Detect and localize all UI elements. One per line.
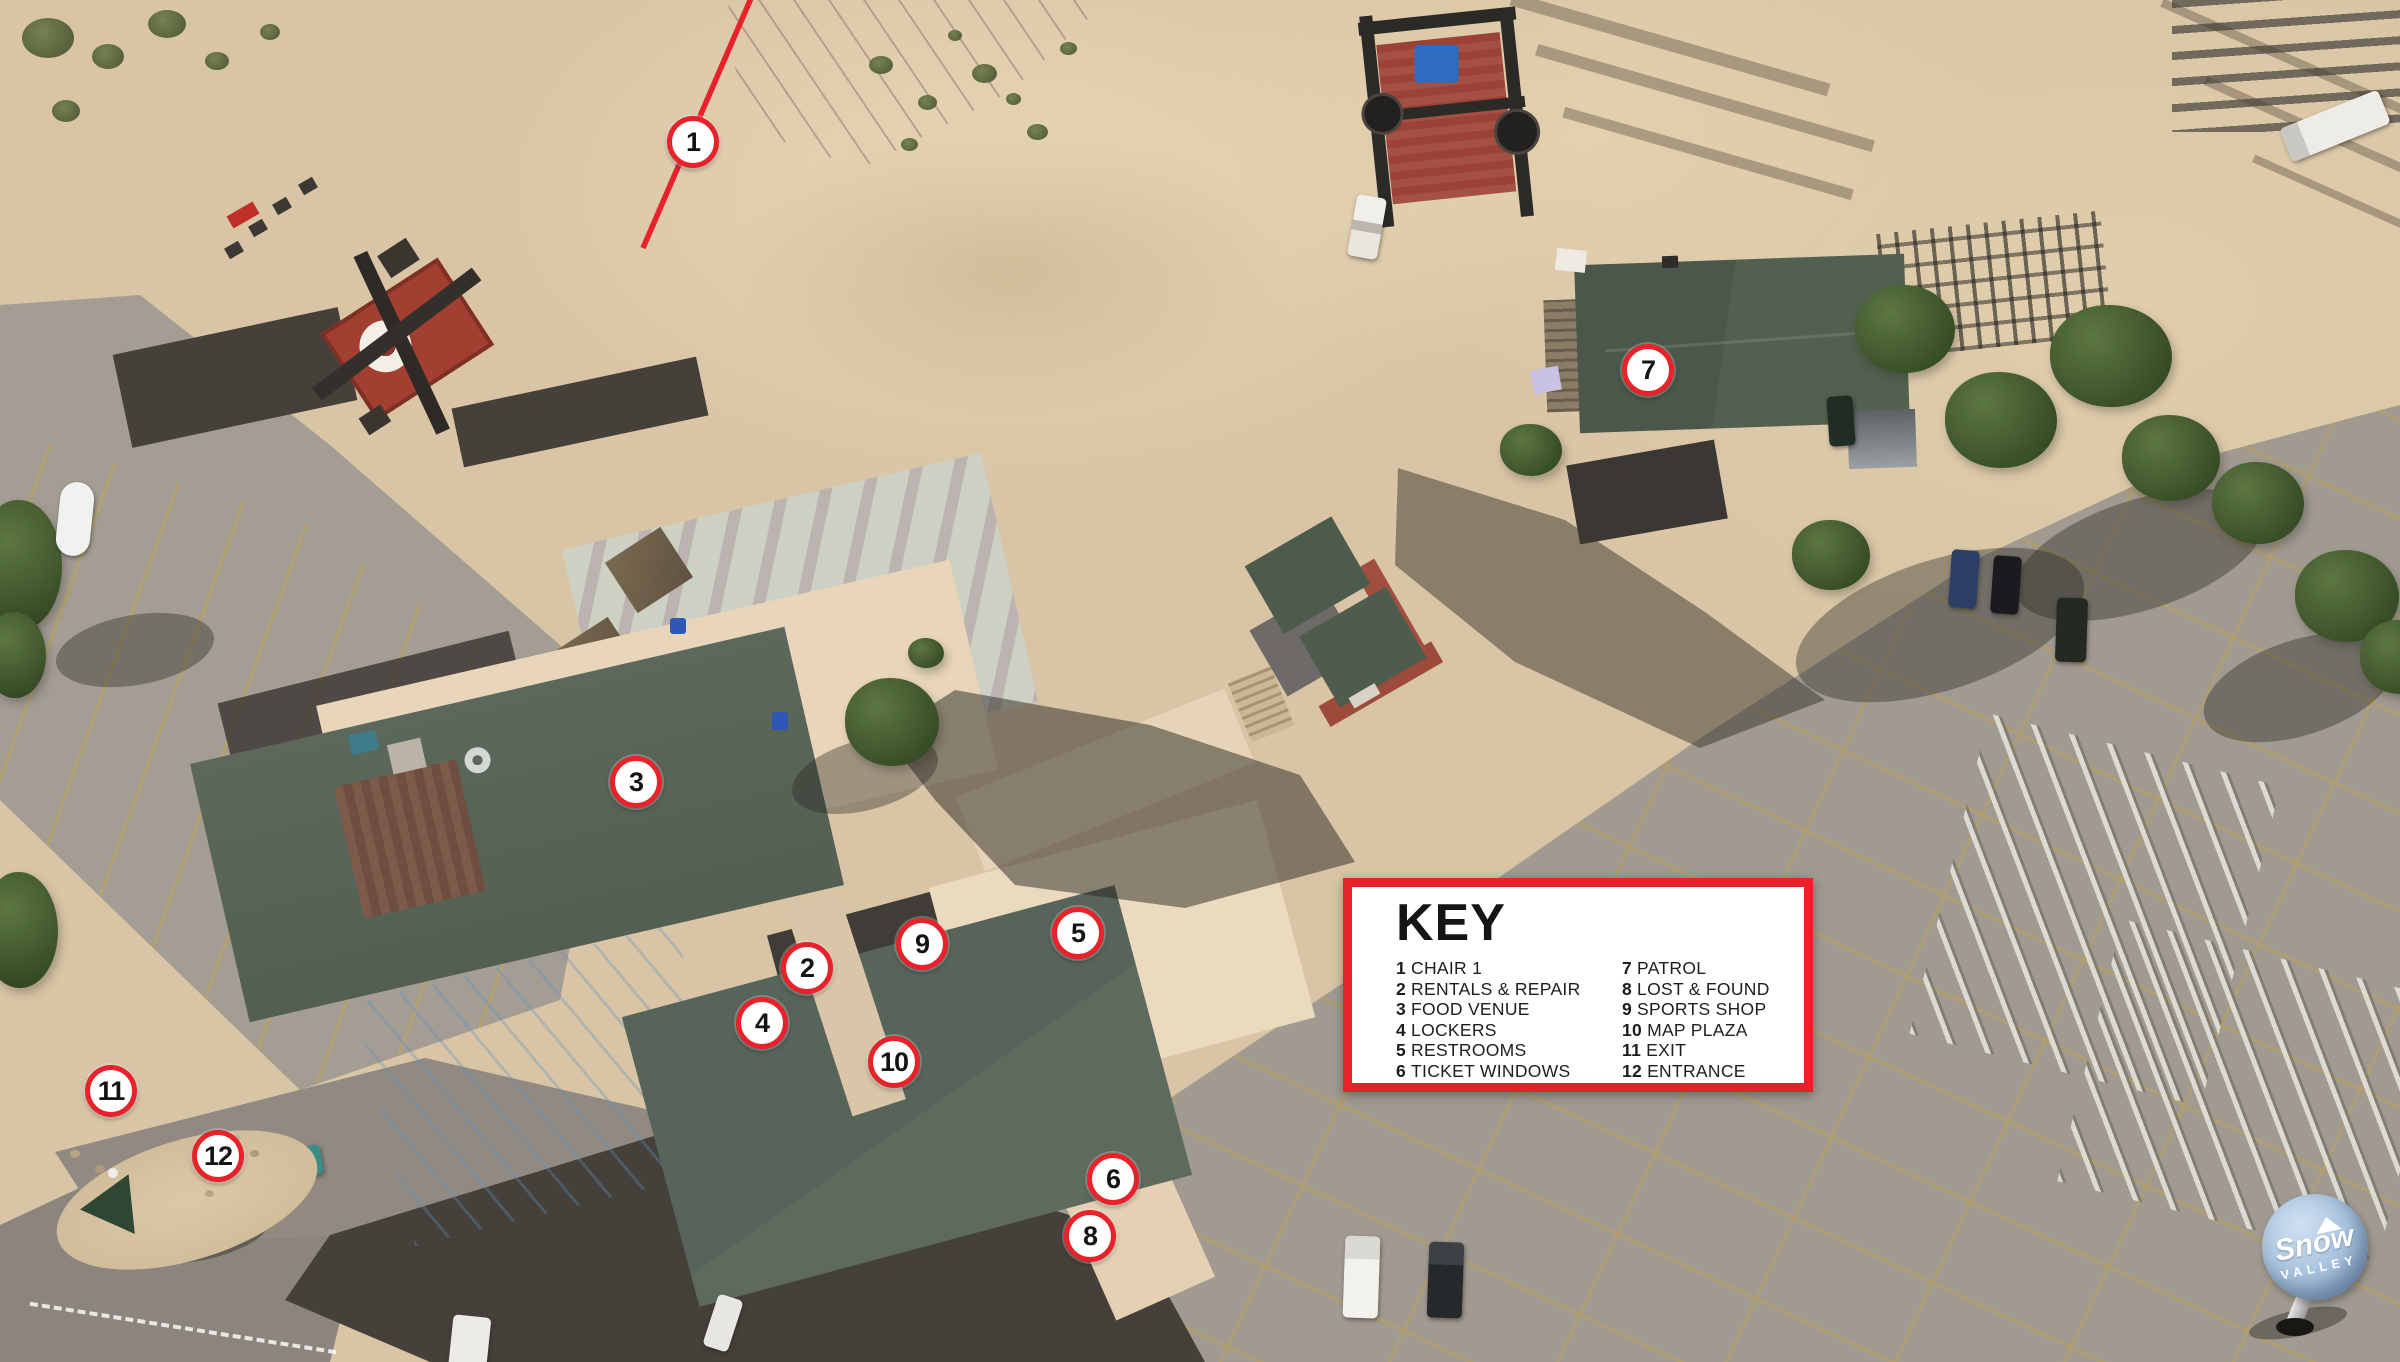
marker-5: 5	[1052, 907, 1104, 959]
marker-4: 4	[736, 997, 788, 1049]
tree	[2122, 415, 2220, 501]
shrub	[901, 138, 918, 151]
marker-number: 6	[1106, 1164, 1120, 1195]
shrub	[52, 100, 80, 122]
blue-tarp	[1415, 45, 1459, 83]
rock	[205, 1190, 214, 1197]
shrub	[92, 44, 124, 69]
aerial-map: 1 2 3 4 5 6 7 8 9 10 11 12 KEY 1CHAIR 1 …	[0, 0, 2400, 1362]
key-item-number: 6	[1396, 1061, 1406, 1081]
logo-pin-base	[2276, 1318, 2314, 1336]
marker-11: 11	[85, 1065, 137, 1117]
shrub	[260, 24, 280, 40]
key-item-label: PATROL	[1637, 958, 1706, 978]
shed	[1847, 409, 1917, 469]
tree	[908, 638, 944, 668]
marker-8: 8	[1064, 1210, 1116, 1262]
key-item-label: RESTROOMS	[1411, 1040, 1526, 1060]
shrub	[948, 30, 962, 41]
key-item: 12ENTRANCE	[1622, 1061, 1770, 1082]
key-item-number: 8	[1622, 979, 1632, 999]
key-item: 10MAP PLAZA	[1622, 1020, 1770, 1041]
marker-number: 3	[629, 767, 643, 798]
key-item-label: MAP PLAZA	[1647, 1020, 1748, 1040]
key-title: KEY	[1396, 897, 1804, 949]
kiosk-finial	[108, 1168, 118, 1178]
marker-9: 9	[896, 918, 948, 970]
marker-1: 1	[667, 116, 719, 168]
key-item-label: RENTALS & REPAIR	[1411, 979, 1580, 999]
shrub	[148, 10, 186, 38]
key-item-label: TICKET WINDOWS	[1411, 1061, 1570, 1081]
rock	[250, 1150, 259, 1157]
tree	[1500, 424, 1562, 476]
car-white	[447, 1314, 492, 1362]
key-column-2: 7PATROL 8LOST & FOUND 9SPORTS SHOP 10MAP…	[1622, 958, 1770, 1081]
key-item-number: 4	[1396, 1020, 1406, 1040]
key-item-label: EXIT	[1646, 1040, 1686, 1060]
key-item-label: CHAIR 1	[1411, 958, 1482, 978]
key-item-label: ENTRANCE	[1647, 1061, 1746, 1081]
key-panel: KEY 1CHAIR 1 2RENTALS & REPAIR 3FOOD VEN…	[1343, 878, 1813, 1092]
key-item-number: 10	[1622, 1020, 1642, 1040]
marker-2: 2	[781, 942, 833, 994]
recycle-bin	[670, 618, 686, 634]
roof-wood-section	[334, 759, 486, 919]
key-item: 3FOOD VENUE	[1396, 999, 1622, 1020]
key-item-label: LOST & FOUND	[1637, 979, 1770, 999]
shrub	[918, 95, 937, 110]
key-item: 1CHAIR 1	[1396, 958, 1622, 979]
marker-12: 12	[192, 1130, 244, 1182]
marker-number: 10	[880, 1047, 908, 1078]
shrub	[1027, 124, 1048, 140]
marker-number: 7	[1641, 355, 1655, 386]
key-item-number: 3	[1396, 999, 1406, 1019]
shrub	[972, 64, 997, 83]
chimney	[1662, 256, 1678, 269]
key-item: 8LOST & FOUND	[1622, 979, 1770, 1000]
tree	[1792, 520, 1870, 590]
chairlift-terminal-top	[1357, 0, 1539, 231]
marker-number: 5	[1071, 918, 1085, 949]
key-item-number: 2	[1396, 979, 1406, 999]
key-item: 5RESTROOMS	[1396, 1040, 1622, 1061]
marker-10: 10	[868, 1036, 920, 1088]
marker-number: 11	[98, 1076, 125, 1107]
shrub	[1006, 93, 1021, 105]
shrub	[1060, 42, 1077, 55]
logo-content: Snow VALLEY	[2252, 1184, 2378, 1310]
marker-number: 4	[755, 1008, 769, 1039]
marker-number: 8	[1083, 1221, 1097, 1252]
roof-round-vent	[462, 745, 493, 776]
tree	[1945, 372, 2057, 468]
marker-number: 12	[204, 1141, 232, 1172]
recycle-bin	[772, 712, 788, 730]
shrub	[22, 18, 74, 58]
key-item: 2RENTALS & REPAIR	[1396, 979, 1622, 1000]
marker-3: 3	[610, 756, 662, 808]
key-item-number: 9	[1622, 999, 1632, 1019]
rock	[70, 1150, 80, 1158]
suv-dark	[2055, 597, 2088, 662]
tree	[845, 678, 939, 766]
key-item-number: 12	[1622, 1061, 1642, 1081]
dirt-bowl	[730, 120, 1290, 420]
key-item-label: FOOD VENUE	[1411, 999, 1530, 1019]
key-item: 7PATROL	[1622, 958, 1770, 979]
suv-dark	[1427, 1241, 1465, 1318]
key-item-number: 5	[1396, 1040, 1406, 1060]
key-item-number: 1	[1396, 958, 1406, 978]
car-blue	[1948, 549, 1980, 609]
key-item-number: 11	[1622, 1040, 1641, 1060]
key-item: 11EXIT	[1622, 1040, 1770, 1061]
marker-6: 6	[1087, 1153, 1139, 1205]
key-item: 9SPORTS SHOP	[1622, 999, 1770, 1020]
key-item-label: SPORTS SHOP	[1637, 999, 1766, 1019]
marker-number: 1	[686, 127, 700, 158]
shrub	[205, 52, 229, 70]
suv-green	[1826, 395, 1855, 447]
tree	[2050, 305, 2172, 407]
car-black	[1990, 555, 2022, 615]
marker-7: 7	[1622, 344, 1674, 396]
tree	[2212, 462, 2304, 544]
key-item: 6TICKET WINDOWS	[1396, 1061, 1622, 1082]
logo-pin: Snow VALLEY	[2262, 1194, 2368, 1300]
shrub	[869, 56, 893, 74]
key-item-label: LOCKERS	[1411, 1020, 1497, 1040]
car-white-pickup	[1343, 1235, 1381, 1318]
marker-number: 9	[915, 929, 929, 960]
tree	[1855, 285, 1955, 373]
key-item-number: 7	[1622, 958, 1632, 978]
white-canopy	[1555, 248, 1587, 273]
purple-tarp	[1530, 366, 1562, 394]
key-item: 4LOCKERS	[1396, 1020, 1622, 1041]
key-column-1: 1CHAIR 1 2RENTALS & REPAIR 3FOOD VENUE 4…	[1396, 958, 1622, 1081]
roof-teal-vent	[348, 730, 380, 756]
marker-number: 2	[800, 953, 814, 984]
